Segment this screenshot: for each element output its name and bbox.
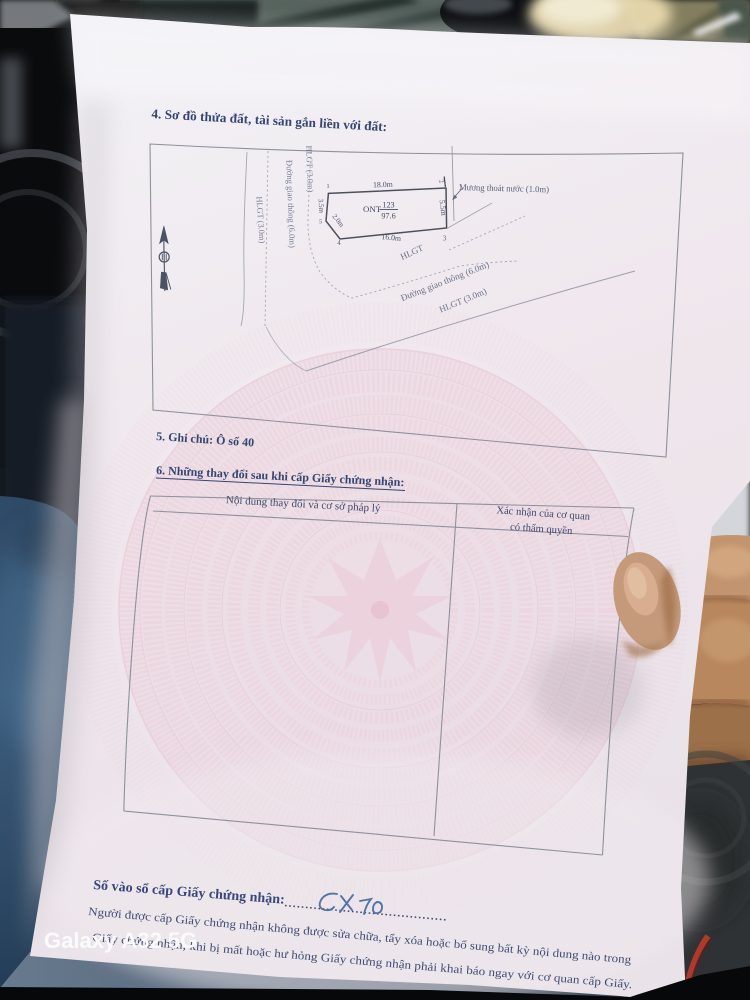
svg-text:18.0m: 18.0m	[373, 180, 393, 190]
svg-text:5.5m: 5.5m	[438, 199, 449, 216]
svg-text:97.6: 97.6	[381, 212, 395, 221]
svg-text:3: 3	[443, 235, 447, 243]
svg-text:4: 4	[337, 239, 341, 247]
svg-text:5: 5	[319, 219, 322, 226]
svg-text:Galaxy A32 5G: Galaxy A32 5G	[44, 928, 197, 953]
svg-text:ONT: ONT	[363, 204, 382, 214]
svg-text:123: 123	[382, 201, 394, 210]
svg-text:3.5m: 3.5m	[317, 198, 326, 213]
svg-text:1: 1	[326, 183, 329, 190]
